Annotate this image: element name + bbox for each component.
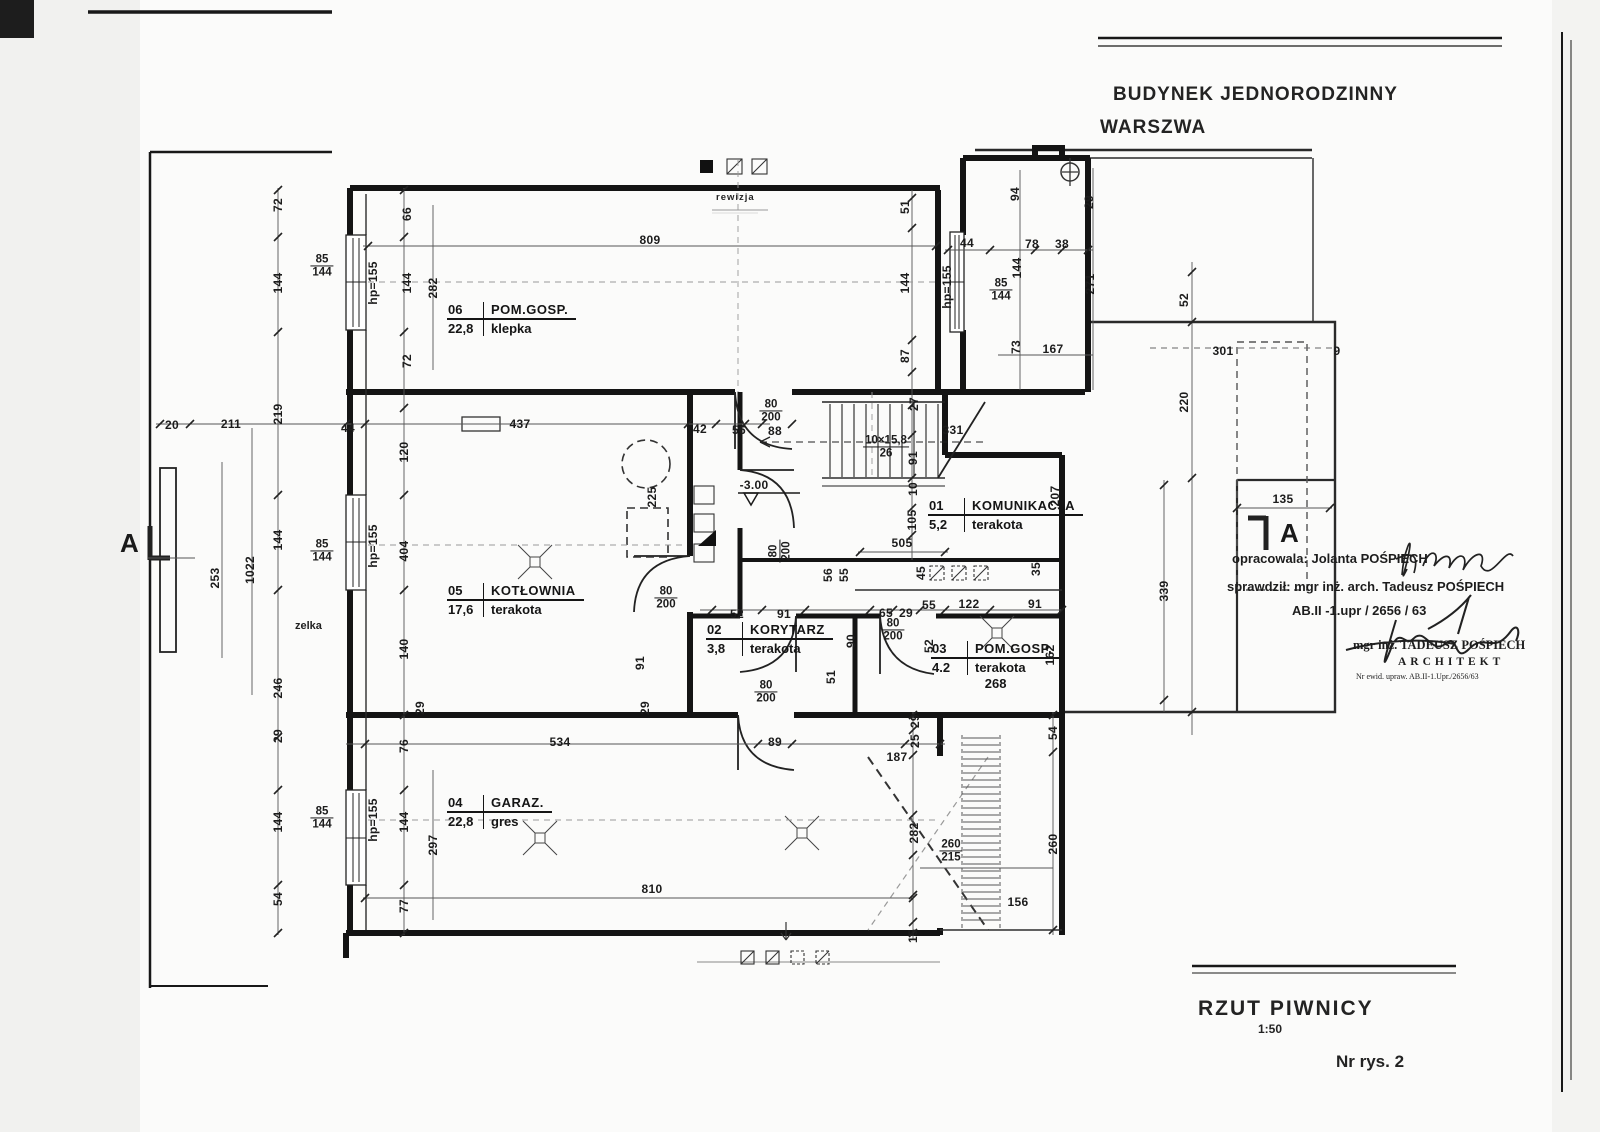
dimension-label: 44 xyxy=(960,236,974,250)
dimension-label: 90 xyxy=(844,634,858,648)
dimension-label: 246 xyxy=(271,678,285,699)
room-name: KOTŁOWNIA xyxy=(484,583,584,599)
revision-label: rewizja xyxy=(716,192,755,203)
room-floor: terakota xyxy=(743,640,809,656)
stamp-architect-name: mgr inż. TADEUSZ POŚPIECH xyxy=(1353,638,1525,653)
dimension-label: 187 xyxy=(887,750,908,764)
room-number: 03 xyxy=(931,641,968,657)
dimension-label: 87 xyxy=(898,349,912,363)
dimension-label: 505 xyxy=(892,536,913,550)
dimension-label: 72 xyxy=(271,198,285,212)
room-floor: terakota xyxy=(965,516,1031,532)
room-area: 5,2 xyxy=(928,516,965,532)
dimension-label: 52 xyxy=(730,607,744,621)
room-area: 22,8 xyxy=(447,813,484,829)
dimension-label: 44 xyxy=(341,421,355,435)
dimension-fraction-label: 85144 xyxy=(310,253,333,278)
scanned-floor-plan-page: BUDYNEK JEDNORODZINNY WARSZWA opracowala… xyxy=(0,0,1600,1132)
room-area: 22,8 xyxy=(447,320,484,336)
room-label: 06POM.GOSP.22,8klepka xyxy=(447,302,576,336)
dimension-label: 253 xyxy=(208,568,222,589)
dimension-fraction-label: 10×15,826 xyxy=(863,434,909,459)
dimension-label: 1022 xyxy=(243,556,257,584)
room-area: 3,8 xyxy=(706,640,743,656)
zelka-label: zelka xyxy=(295,620,322,632)
annotation-layer: BUDYNEK JEDNORODZINNY WARSZWA opracowala… xyxy=(0,0,1600,1132)
prepared-by-note: opracowala: Jolanta POŚPIECH xyxy=(1232,551,1428,566)
drawing-title-line1: BUDYNEK JEDNORODZINNY xyxy=(1113,84,1398,106)
dimension-label: 120 xyxy=(397,442,411,463)
room-floor: terakota xyxy=(484,601,550,617)
dimension-label: 29 xyxy=(413,701,427,715)
dimension-label: 38 xyxy=(1055,237,1069,251)
dimension-label: 35 xyxy=(1029,562,1043,576)
dimension-fraction-label: 80200 xyxy=(881,617,904,642)
dimension-label: 78 xyxy=(1025,237,1039,251)
plan-scale: 1:50 xyxy=(1258,1022,1282,1036)
dimension-label: 122 xyxy=(959,597,980,611)
dimension-label: hp=155 xyxy=(940,265,954,309)
plan-name: RZUT PIWNICY xyxy=(1198,997,1374,1021)
dimension-label: 27 xyxy=(907,397,921,411)
dimension-label: 20 xyxy=(165,418,179,432)
dimension-label: 810 xyxy=(642,882,663,896)
dimension-label: 211 xyxy=(221,417,241,431)
dimension-label: 156 xyxy=(1008,895,1029,909)
dimension-label: 144 xyxy=(271,530,285,551)
dimension-label: 29 xyxy=(1082,195,1096,209)
dimension-label: 260 xyxy=(1046,834,1060,855)
dimension-label: 282 xyxy=(426,278,440,299)
room-name: KOMUNIKACJA xyxy=(965,498,1083,514)
dimension-label: 301 xyxy=(1213,344,1234,358)
drawing-title-line2: WARSZWA xyxy=(1100,117,1206,139)
dimension-label: 15 xyxy=(906,929,920,943)
sheet-number: Nr rys. 2 xyxy=(1336,1052,1404,1072)
dimension-fraction-label: 85144 xyxy=(310,538,333,563)
room-number: 04 xyxy=(447,795,484,811)
dimension-label: 51 xyxy=(824,670,838,684)
room-area: 17,6 xyxy=(447,601,484,617)
dimension-label: 105 xyxy=(905,510,919,531)
room-label: 01KOMUNIKACJA5,2terakota xyxy=(928,498,1083,532)
dimension-label: 73 xyxy=(1009,340,1023,354)
dimension-label: 167 xyxy=(1043,342,1064,356)
dimension-label: 56 xyxy=(821,568,835,582)
dimension-label: 339 xyxy=(1157,581,1171,602)
room-area: 4.2 xyxy=(931,659,968,675)
room-label: 05KOTŁOWNIA17,6terakota xyxy=(447,583,584,617)
checked-by-note: sprawdził: mgr inż. arch. Tadeusz POŚPIE… xyxy=(1227,579,1504,594)
dimension-label: 331 xyxy=(943,423,964,437)
room-label: 02KORYTARZ3,8terakota xyxy=(706,622,833,656)
dimension-label: -3.00 xyxy=(740,478,769,492)
dimension-label: 144 xyxy=(898,273,912,294)
dimension-fraction-label: 80200 xyxy=(654,585,677,610)
room-name: POM.GOSP. xyxy=(484,302,576,318)
dimension-label: 51 xyxy=(898,200,912,214)
dimension-label: 10 xyxy=(906,482,920,496)
dimension-label: 271 xyxy=(1083,274,1097,295)
dimension-label: 66 xyxy=(400,207,414,221)
dimension-label: 77 xyxy=(397,899,411,913)
dimension-fraction-label: 80200 xyxy=(759,398,782,423)
dimension-label: 437 xyxy=(510,417,531,431)
dimension-label: 135 xyxy=(1273,492,1294,506)
dimension-label: 534 xyxy=(550,735,571,749)
dimension-fraction-label: 260215 xyxy=(939,838,962,863)
room-number: 06 xyxy=(447,302,484,318)
dimension-label: 94 xyxy=(1008,187,1022,201)
dimension-label: 54 xyxy=(1046,726,1060,740)
dimension-label: 144 xyxy=(400,273,414,294)
room-number: 05 xyxy=(447,583,484,599)
dimension-label: 88 xyxy=(768,424,782,438)
dimension-label: 144 xyxy=(397,812,411,833)
dimension-label: 219 xyxy=(271,404,285,425)
dimension-label: 76 xyxy=(397,739,411,753)
dimension-label: hp=155 xyxy=(366,261,380,305)
room-name: GARAZ. xyxy=(484,795,552,811)
dimension-label: 29 xyxy=(908,714,922,728)
room-name: KORYTARZ xyxy=(743,622,833,638)
dimension-label: 809 xyxy=(640,233,661,247)
dimension-label: 220 xyxy=(1177,392,1191,413)
room-name: POM.GOSP. xyxy=(968,641,1060,657)
room-floor: terakota xyxy=(968,659,1034,675)
dimension-label: 89 xyxy=(768,735,782,749)
room-number: 01 xyxy=(928,498,965,514)
dimension-label: 9 xyxy=(1334,344,1341,358)
dimension-label: 72 xyxy=(400,354,414,368)
dimension-label: 29 xyxy=(638,701,652,715)
dimension-fraction-label: 80200 xyxy=(767,539,792,562)
dimension-label: 54 xyxy=(271,892,285,906)
dimension-label: 282 xyxy=(907,823,921,844)
dimension-label: hp=155 xyxy=(366,524,380,568)
dimension-label: 91 xyxy=(777,607,791,621)
dimension-label: 140 xyxy=(397,639,411,660)
dimension-fraction-label: 85144 xyxy=(989,277,1012,302)
room-floor: gres xyxy=(484,813,526,829)
section-marker-a-left: A xyxy=(120,528,139,559)
dimension-label: 144 xyxy=(271,812,285,833)
dimension-label: 144 xyxy=(271,273,285,294)
room-floor: klepka xyxy=(484,320,539,336)
license-note: AB.II -1.upr / 2656 / 63 xyxy=(1292,603,1426,618)
dimension-fraction-label: 80200 xyxy=(754,679,777,704)
dimension-label: 55 xyxy=(837,568,851,582)
dimension-label: 404 xyxy=(397,541,411,562)
room-number: 02 xyxy=(706,622,743,638)
dimension-label: 297 xyxy=(426,835,440,856)
room-extra-dim: 268 xyxy=(931,675,1060,691)
dimension-label: 52 xyxy=(1177,293,1191,307)
room-label: 04GARAZ.22,8gres xyxy=(447,795,552,829)
dimension-label: 144 xyxy=(1010,258,1024,279)
dimension-label: hp=155 xyxy=(366,798,380,842)
room-label: 03POM.GOSP.4.2terakota268 xyxy=(931,641,1060,691)
dimension-label: 29 xyxy=(271,729,285,743)
dimension-label: 42 xyxy=(693,422,707,436)
dimension-label: 91 xyxy=(633,656,647,670)
stamp-registration: Nr ewid. upraw. AB.II-1.Upr./2656/63 xyxy=(1356,672,1479,681)
dimension-label: 91 xyxy=(1028,597,1042,611)
dimension-label: 56 xyxy=(732,423,746,437)
dimension-label: 225 xyxy=(645,487,659,508)
dimension-label: 55 xyxy=(922,598,936,612)
stamp-architect-title: ARCHITEKT xyxy=(1398,656,1504,668)
dimension-fraction-label: 85144 xyxy=(310,805,333,830)
section-marker-a-right: A xyxy=(1280,518,1299,549)
dimension-label: 25 xyxy=(908,734,922,748)
dimension-label: 45 xyxy=(914,566,928,580)
